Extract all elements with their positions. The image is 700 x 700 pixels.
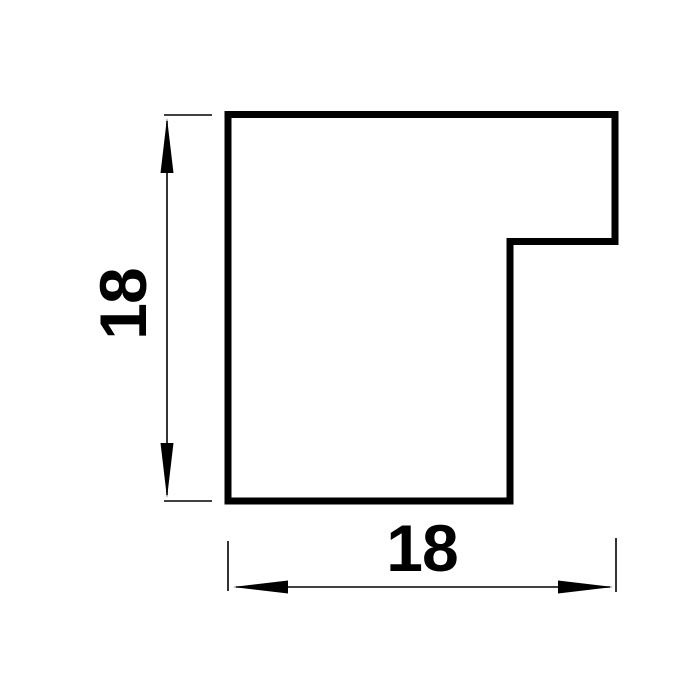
arrow-left-icon [233, 581, 288, 594]
arrow-up-icon [161, 118, 174, 173]
width-dimension: 18 [228, 511, 616, 594]
height-dimension: 18 [86, 115, 212, 501]
drawing-svg: 18 18 [0, 0, 700, 700]
arrow-down-icon [161, 443, 174, 498]
profile-outline [228, 115, 615, 502]
technical-drawing: 18 18 [0, 0, 700, 700]
width-dimension-label: 18 [386, 511, 457, 585]
arrow-right-icon [558, 581, 613, 594]
height-dimension-label: 18 [86, 268, 160, 339]
